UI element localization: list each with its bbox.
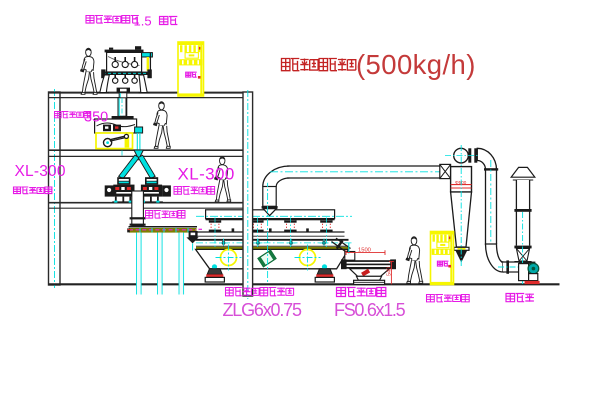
svg-text:XL-300: XL-300	[178, 165, 235, 184]
svg-text:(500kg/h): (500kg/h)	[356, 49, 476, 80]
svg-text:XL-300: XL-300	[15, 163, 66, 180]
svg-text:1500: 1500	[358, 248, 371, 254]
svg-text:ZLG6x0.75: ZLG6x0.75	[223, 300, 302, 320]
svg-text:1.5: 1.5	[134, 14, 152, 29]
svg-text:540: 540	[386, 267, 392, 276]
svg-text:FS0.6x1.5: FS0.6x1.5	[334, 300, 406, 320]
svg-text:350: 350	[84, 110, 108, 126]
